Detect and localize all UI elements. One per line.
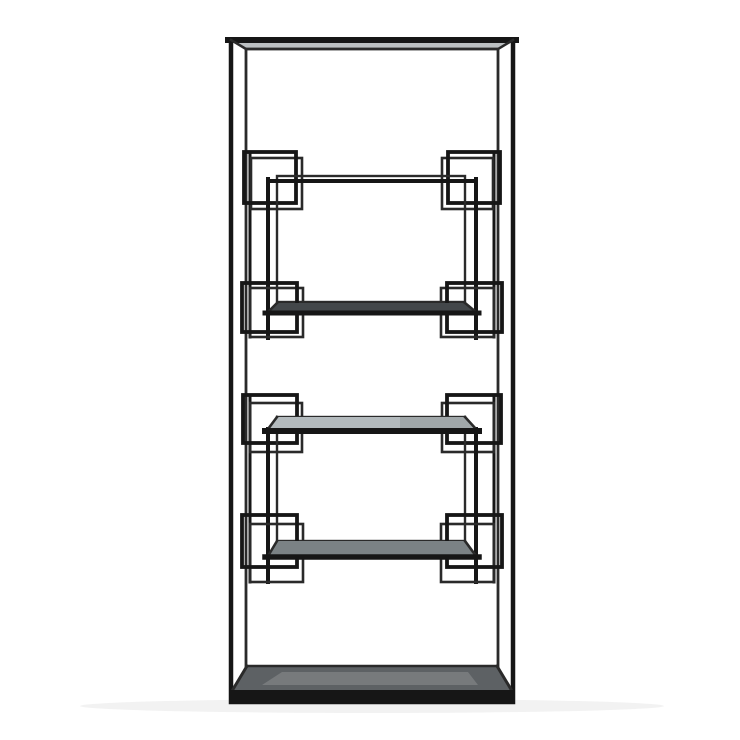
back-frame: [246, 49, 498, 693]
etagere-product-photo: [0, 0, 740, 740]
inner-box-back: [277, 176, 465, 302]
glass-pane: [268, 541, 476, 556]
glass-shelf-1: [265, 303, 479, 313]
base-shelf: [229, 666, 515, 703]
inner-box-back: [277, 417, 465, 541]
photo-stage: [0, 0, 740, 740]
glass-shade: [400, 417, 476, 429]
upper-shelf-module: [242, 152, 502, 338]
side-accent-rails: [250, 152, 494, 582]
glass-highlight: [262, 672, 478, 685]
glass-shelf-2: [265, 417, 479, 431]
lower-shelf-module: [242, 395, 502, 582]
base-front-face: [229, 690, 515, 703]
glass-shelf-3: [265, 541, 479, 557]
outer-frame: [228, 40, 516, 702]
front-frame: [231, 40, 513, 702]
etagere-illustration: [0, 0, 740, 740]
